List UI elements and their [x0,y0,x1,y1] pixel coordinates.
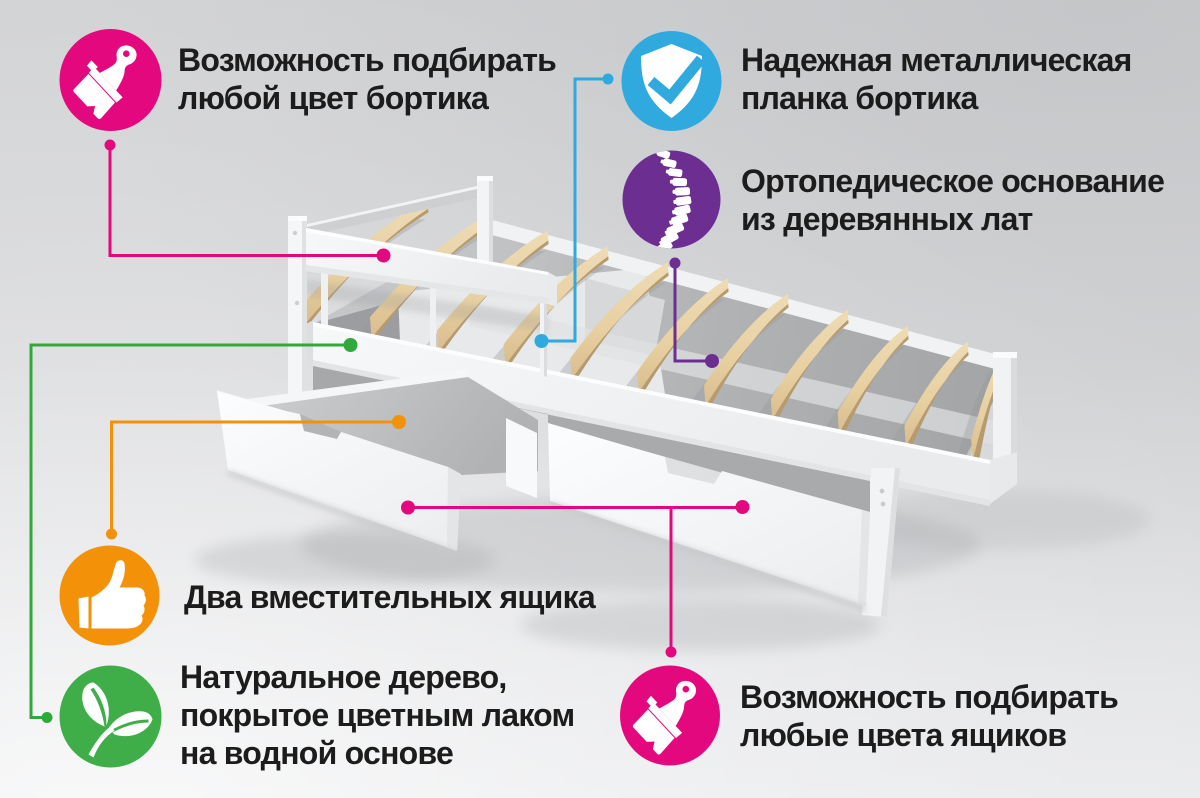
svg-text:из деревянных лат: из деревянных лат [741,201,1033,237]
svg-text:любые цвета ящиков: любые цвета ящиков [740,717,1066,753]
svg-text:на водной основе: на водной основе [180,735,453,771]
svg-text:Два вместительных ящика: Два вместительных ящика [184,579,596,615]
svg-text:покрытое цветным лаком: покрытое цветным лаком [180,697,574,733]
svg-text:Надежная металлическая: Надежная металлическая [741,42,1132,78]
svg-text:Возможность подбирать: Возможность подбирать [740,679,1118,715]
svg-text:планка бортика: планка бортика [741,80,979,116]
svg-text:любой цвет бортика: любой цвет бортика [178,80,489,116]
svg-text:Возможность подбирать: Возможность подбирать [178,42,556,78]
svg-text:Натуральное дерево,: Натуральное дерево, [180,659,507,695]
svg-text:Ортопедическое основание: Ортопедическое основание [741,163,1164,199]
